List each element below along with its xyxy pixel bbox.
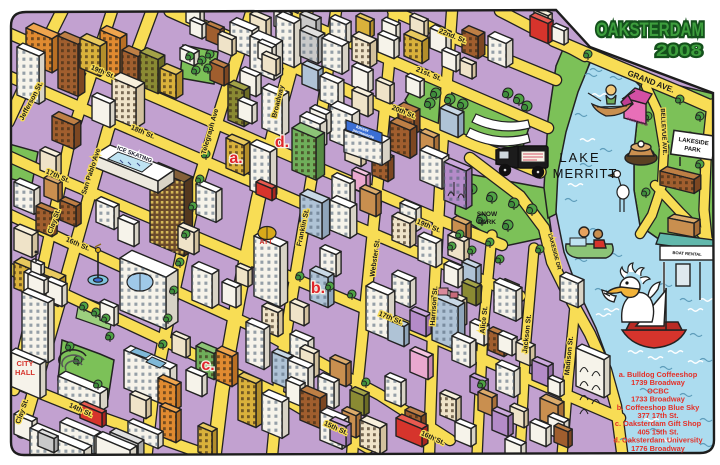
svg-text:c.: c.	[201, 357, 214, 374]
svg-text:OAKSTERDAM: OAKSTERDAM	[596, 20, 704, 41]
svg-text:d.: d.	[275, 134, 289, 151]
svg-text:a.: a.	[229, 150, 242, 167]
svg-text:CITY: CITY	[16, 359, 33, 368]
svg-text:HALL: HALL	[15, 368, 35, 377]
svg-text:b.: b.	[311, 280, 325, 297]
svg-text:PARK: PARK	[478, 219, 496, 226]
svg-text:2008: 2008	[656, 41, 702, 60]
svg-text:MERRITT: MERRITT	[553, 166, 618, 181]
svg-text:1776 Broadway: 1776 Broadway	[631, 444, 686, 453]
svg-text:SNOW: SNOW	[477, 211, 498, 218]
svg-text:LAKE: LAKE	[559, 150, 600, 165]
